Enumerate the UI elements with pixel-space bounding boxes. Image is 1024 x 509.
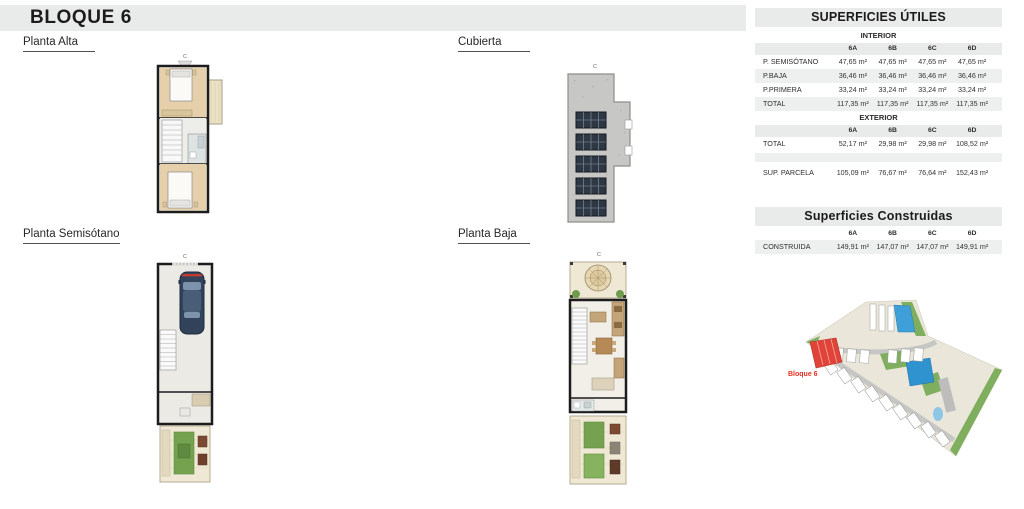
col-header: 6C bbox=[913, 43, 953, 55]
garden-table-icon bbox=[178, 444, 190, 458]
col-header: 6D bbox=[952, 125, 992, 137]
table-row: P.PRIMERA 33,24 m² 33,24 m² 33,24 m² 33,… bbox=[755, 83, 1002, 97]
interior-section-label: INTERIOR bbox=[755, 31, 1002, 41]
bathroom bbox=[572, 400, 594, 411]
row-label: CONSTRUIDA bbox=[755, 240, 833, 254]
solar-panel-icon bbox=[576, 178, 606, 194]
cell-value: 33,24 m² bbox=[873, 83, 913, 97]
car-icon bbox=[179, 272, 206, 334]
col-header: 6B bbox=[873, 43, 913, 55]
cell-value: 105,09 m² bbox=[833, 166, 873, 180]
stairs-icon bbox=[160, 330, 176, 370]
row-label: TOTAL bbox=[755, 137, 833, 151]
bed-icon bbox=[166, 69, 196, 101]
planta-alta-drawing: C bbox=[140, 52, 230, 220]
solar-panels bbox=[576, 112, 606, 216]
corner-cell bbox=[755, 228, 833, 240]
site-plan: Bloque 6 bbox=[788, 292, 1006, 462]
planter-icon bbox=[198, 436, 207, 447]
col-header: 6C bbox=[913, 125, 953, 137]
cell-value: 117,35 m² bbox=[913, 97, 953, 111]
corner-cell bbox=[755, 125, 833, 137]
planter-icon bbox=[198, 454, 207, 465]
bush-icon bbox=[616, 290, 624, 298]
row-label: P.BAJA bbox=[755, 69, 833, 83]
grass-patch bbox=[584, 454, 604, 478]
exterior-header-row: 6A 6B 6C 6D bbox=[755, 125, 1002, 137]
section-marker: C bbox=[593, 64, 597, 70]
cubierta-drawing: C bbox=[552, 62, 638, 228]
patio bbox=[160, 426, 210, 482]
bloque-6-label: Bloque 6 bbox=[788, 371, 818, 378]
label-planta-alta: Planta Alta bbox=[23, 36, 95, 52]
cell-value: 117,35 m² bbox=[873, 97, 913, 111]
table-row: SUP. PARCELA 105,09 m² 76,67 m² 76,64 m²… bbox=[755, 166, 1002, 180]
solar-panel-icon bbox=[576, 134, 606, 150]
cell-value: 149,91 m² bbox=[952, 240, 992, 254]
cell-value: 29,98 m² bbox=[873, 137, 913, 151]
planter-icon bbox=[610, 460, 620, 474]
planta-semisotano-drawing: C bbox=[140, 252, 230, 490]
building-row bbox=[870, 304, 894, 331]
col-header: 6A bbox=[833, 125, 873, 137]
cell-value: 36,46 m² bbox=[833, 69, 873, 83]
rear-garden bbox=[570, 416, 626, 484]
construidas-header-row: 6A 6B 6C 6D bbox=[755, 228, 1002, 240]
cell-value: 47,65 m² bbox=[873, 55, 913, 69]
superficies-utiles-title: SUPERFICIES ÚTILES bbox=[755, 8, 1002, 27]
bush-icon bbox=[572, 290, 580, 298]
section-marker: C bbox=[183, 54, 187, 60]
cell-value: 33,24 m² bbox=[833, 83, 873, 97]
cell-value: 36,46 m² bbox=[952, 69, 992, 83]
exterior-section-label: EXTERIOR bbox=[755, 113, 1002, 123]
table-divider bbox=[755, 153, 1002, 162]
solar-panel-icon bbox=[576, 112, 606, 128]
sofa-icon bbox=[592, 378, 614, 390]
col-header: 6B bbox=[873, 125, 913, 137]
label-planta-semisotano: Planta Semisótano bbox=[23, 228, 120, 244]
bed-icon bbox=[163, 172, 198, 208]
wardrobe bbox=[162, 110, 192, 116]
row-label: SUP. PARCELA bbox=[755, 166, 833, 180]
planta-baja-drawing: C bbox=[556, 250, 642, 492]
planter-icon bbox=[610, 424, 620, 434]
solar-panel-icon bbox=[576, 156, 606, 172]
counter bbox=[614, 358, 624, 378]
pool bbox=[933, 407, 943, 421]
cell-value: 117,35 m² bbox=[952, 97, 992, 111]
label-planta-baja: Planta Baja bbox=[458, 228, 530, 244]
table-row: TOTAL 117,35 m² 117,35 m² 117,35 m² 117,… bbox=[755, 97, 1002, 111]
cell-value: 36,46 m² bbox=[913, 69, 953, 83]
cell-value: 47,65 m² bbox=[913, 55, 953, 69]
cell-value: 117,35 m² bbox=[833, 97, 873, 111]
page-title: BLOQUE 6 bbox=[30, 5, 132, 31]
row-label: P. SEMISÓTANO bbox=[755, 55, 833, 69]
cell-value: 147,07 m² bbox=[913, 240, 953, 254]
table-row: CONSTRUIDA 149,91 m² 147,07 m² 147,07 m²… bbox=[755, 240, 1002, 254]
stairs-icon bbox=[162, 120, 182, 162]
cell-value: 152,43 m² bbox=[952, 166, 992, 180]
col-header: 6A bbox=[833, 43, 873, 55]
cell-value: 47,65 m² bbox=[952, 55, 992, 69]
section-marker: C bbox=[183, 254, 187, 260]
entry-terrace bbox=[570, 262, 626, 298]
cell-value: 76,67 m² bbox=[873, 166, 913, 180]
cell-value: 76,64 m² bbox=[913, 166, 953, 180]
stairs-icon bbox=[572, 308, 587, 364]
table-row: P.BAJA 36,46 m² 36,46 m² 36,46 m² 36,46 … bbox=[755, 69, 1002, 83]
pool bbox=[906, 358, 934, 386]
col-header: 6D bbox=[952, 43, 992, 55]
bathroom bbox=[188, 134, 206, 164]
cell-value: 108,52 m² bbox=[952, 137, 992, 151]
storage-unit bbox=[192, 394, 210, 406]
cell-value: 33,24 m² bbox=[913, 83, 953, 97]
cell-value: 47,65 m² bbox=[833, 55, 873, 69]
grass-patch bbox=[584, 422, 604, 448]
cell-value: 36,46 m² bbox=[873, 69, 913, 83]
table-row: P. SEMISÓTANO 47,65 m² 47,65 m² 47,65 m²… bbox=[755, 55, 1002, 69]
table-row: TOTAL 52,17 m² 29,98 m² 29,98 m² 108,52 … bbox=[755, 137, 1002, 151]
utility-fixture bbox=[180, 408, 190, 416]
cell-value: 147,07 m² bbox=[873, 240, 913, 254]
col-header: 6A bbox=[833, 228, 873, 240]
corner-cell bbox=[755, 43, 833, 55]
cell-value: 149,91 m² bbox=[833, 240, 873, 254]
col-header: 6D bbox=[952, 228, 992, 240]
col-header: 6C bbox=[913, 228, 953, 240]
col-header: 6B bbox=[873, 228, 913, 240]
row-label: P.PRIMERA bbox=[755, 83, 833, 97]
label-cubierta: Cubierta bbox=[458, 36, 530, 52]
superficies-construidas-title: Superficies Construidas bbox=[755, 207, 1002, 226]
cell-value: 33,24 m² bbox=[952, 83, 992, 97]
roof-vent bbox=[625, 146, 632, 155]
row-label: TOTAL bbox=[755, 97, 833, 111]
cell-value: 29,98 m² bbox=[913, 137, 953, 151]
solar-panel-icon bbox=[576, 200, 606, 216]
kitchen-island bbox=[590, 312, 606, 322]
shed-icon bbox=[610, 442, 620, 454]
area-tables-panel: SUPERFICIES ÚTILES INTERIOR 6A 6B 6C 6D … bbox=[755, 8, 1002, 254]
cell-value: 52,17 m² bbox=[833, 137, 873, 151]
section-marker: C bbox=[597, 252, 601, 258]
interior-header-row: 6A 6B 6C 6D bbox=[755, 43, 1002, 55]
roof-vent bbox=[625, 120, 632, 129]
